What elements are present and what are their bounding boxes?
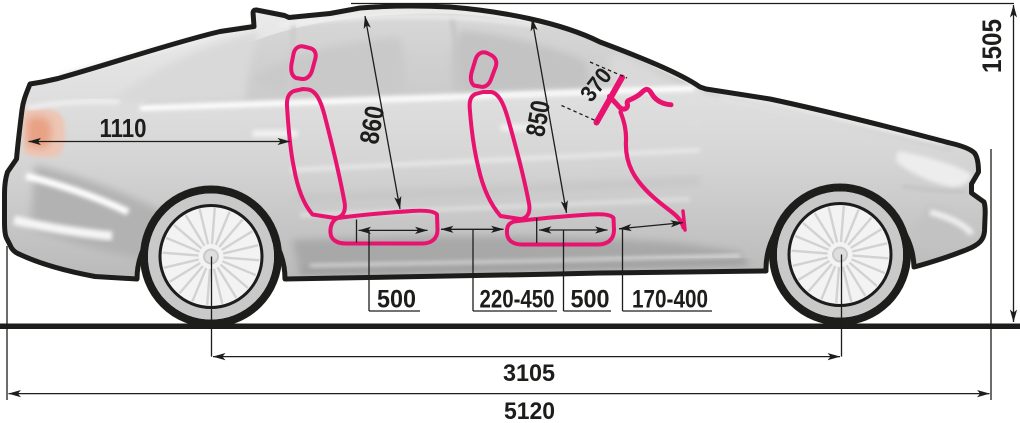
svg-text:3105: 3105 — [503, 360, 555, 387]
svg-text:500: 500 — [571, 286, 610, 314]
svg-text:5120: 5120 — [504, 398, 555, 423]
svg-text:1505: 1505 — [977, 19, 1007, 73]
svg-text:850: 850 — [520, 98, 556, 139]
svg-text:500: 500 — [377, 286, 416, 314]
svg-text:220-450: 220-450 — [480, 286, 555, 314]
svg-text:170-400: 170-400 — [632, 286, 708, 314]
svg-text:1110: 1110 — [100, 113, 147, 143]
